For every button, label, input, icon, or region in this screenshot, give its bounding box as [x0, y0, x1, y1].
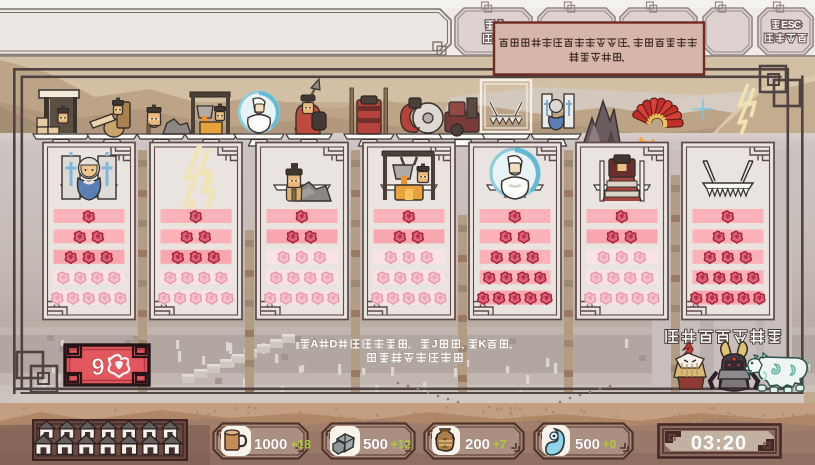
svg-text:+12: +12 — [391, 438, 412, 452]
svg-text:500: 500 — [575, 436, 600, 453]
svg-text:+0: +0 — [603, 438, 617, 452]
svg-text:D: D — [329, 339, 337, 351]
svg-text:A: A — [310, 339, 318, 351]
svg-text:J: J — [431, 339, 437, 351]
svg-text:+7: +7 — [493, 438, 507, 452]
svg-text:1000: 1000 — [254, 436, 287, 453]
svg-text:500: 500 — [363, 436, 388, 453]
svg-text:9: 9 — [91, 354, 104, 381]
svg-text:+18: +18 — [290, 438, 311, 452]
svg-text:03:20: 03:20 — [691, 433, 747, 455]
svg-text:200: 200 — [465, 436, 490, 453]
svg-text:K: K — [478, 339, 487, 351]
